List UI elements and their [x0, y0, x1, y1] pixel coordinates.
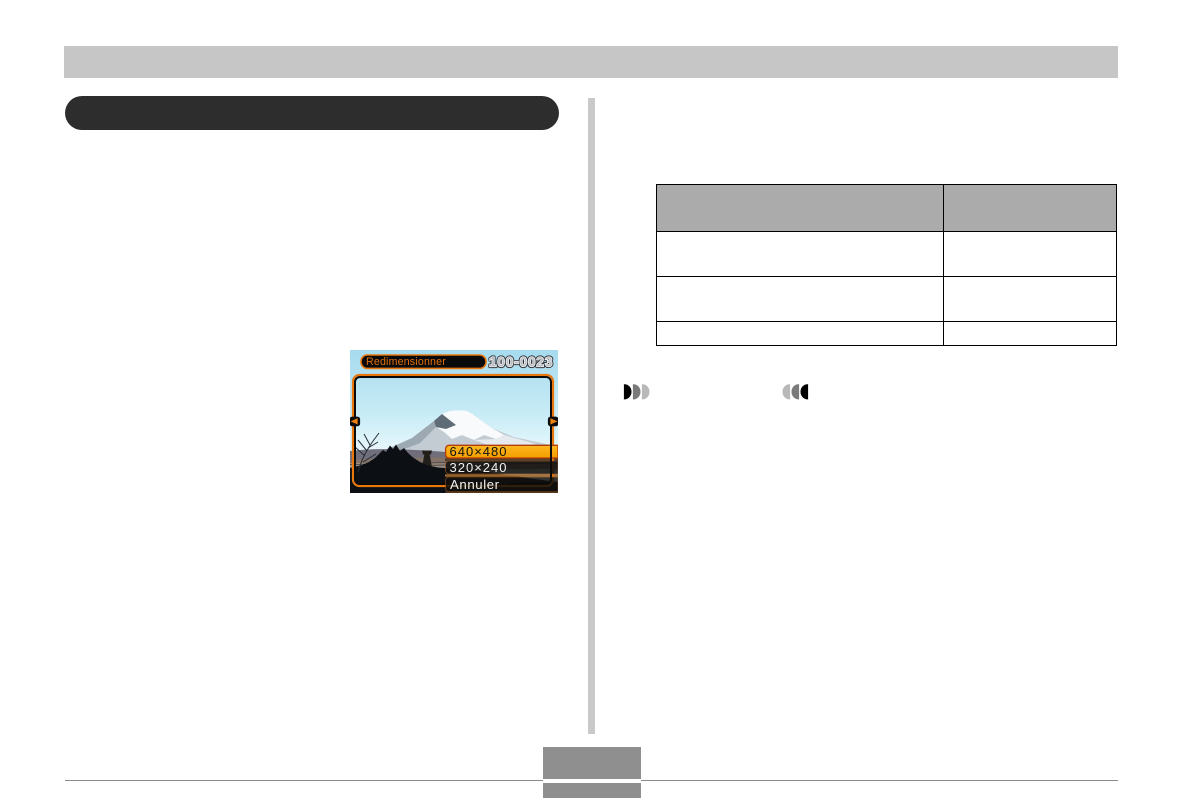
svg-text:100-0023: 100-0023: [489, 354, 553, 369]
svg-text:640×480: 640×480: [450, 444, 508, 459]
svg-text:Redimensionner: Redimensionner: [366, 356, 446, 368]
svg-text:Annuler: Annuler: [450, 477, 500, 492]
svg-text:320×240: 320×240: [450, 460, 508, 475]
